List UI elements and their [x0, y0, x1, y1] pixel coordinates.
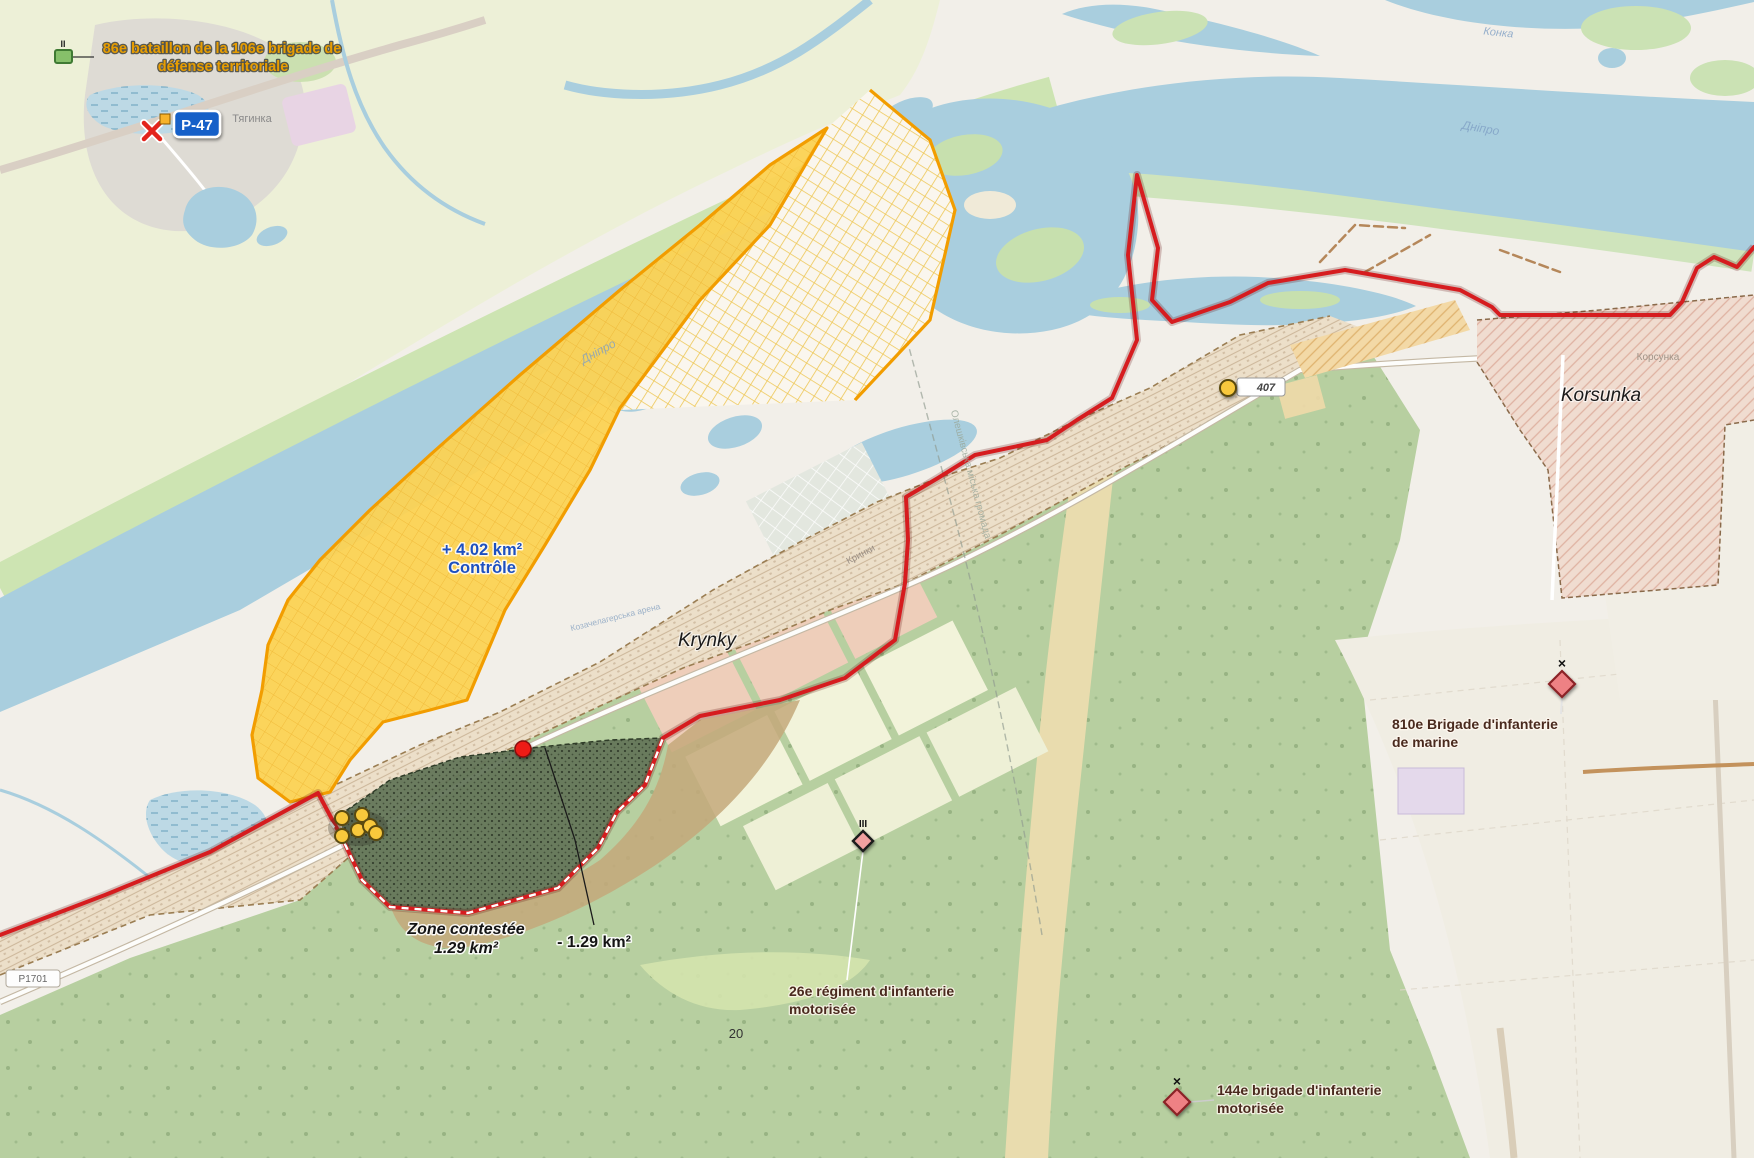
- lavender-compound: [1398, 768, 1464, 814]
- floodplain-island-1: [1090, 297, 1150, 313]
- road-ref-label: Р1701: [19, 974, 48, 985]
- label-control-status: Contrôle: [448, 559, 516, 577]
- unit-144e-echelon: ×: [1173, 1073, 1181, 1089]
- map-canvas[interactable]: II P-47 407 Р1701 × III × Тягинка Дніпро…: [0, 0, 1754, 1158]
- label-control-area: + 4.02 km²: [442, 541, 523, 559]
- label-krynky: Krynky: [678, 630, 738, 651]
- label-unit-144e-line2: motorisée: [1217, 1100, 1284, 1116]
- marker-red-event-dot[interactable]: [515, 741, 531, 757]
- lake-island-sand: [964, 191, 1016, 219]
- road-shield-p47-label: P-47: [181, 117, 213, 134]
- label-unit-810e-line1: 810e Brigade d'infanterie: [1392, 716, 1558, 732]
- unit-810e-echelon: ×: [1558, 655, 1566, 671]
- island-green-1: [1581, 6, 1691, 50]
- floodplain-island-2: [1260, 291, 1340, 309]
- pond-island: [1598, 48, 1626, 68]
- label-unit-810e-line2: de marine: [1392, 734, 1458, 750]
- situation-map-svg: II P-47 407 Р1701 × III × Тягинка Дніпро…: [0, 0, 1754, 1158]
- event-dot: [335, 829, 349, 843]
- unit-810e-leader: [1561, 698, 1562, 714]
- label-contested-name: Zone contestée: [406, 921, 524, 938]
- friendly-unit-icon: [55, 50, 72, 63]
- label-tiahynka: Тягинка: [232, 113, 272, 125]
- label-plot-20: 20: [729, 1026, 743, 1041]
- label-unit-26e-line1: 26e régiment d'infanterie: [789, 983, 954, 999]
- road-ref-label: 407: [1256, 382, 1276, 394]
- label-unit-144e-line1: 144e brigade d'infanterie: [1217, 1082, 1382, 1098]
- label-korsunka: Korsunka: [1561, 385, 1641, 406]
- event-dot: [369, 826, 383, 840]
- label-unit-26e-line2: motorisée: [789, 1001, 856, 1017]
- label-unit-86e-line1: 86e bataillon de la 106e brigade de: [103, 41, 342, 57]
- unit-26e-echelon: III: [859, 819, 868, 830]
- label-unit-86e-line2: défense territoriale: [158, 59, 289, 75]
- road-ref-bottom-left: Р1701: [6, 970, 60, 987]
- label-korsunka-ua: Корсунка: [1637, 352, 1680, 363]
- unit-86e-echelon: II: [60, 39, 65, 49]
- label-contested-area: 1.29 km²: [434, 940, 499, 957]
- event-dot: [1220, 380, 1236, 396]
- marker-event-korsunka[interactable]: 407: [1220, 378, 1285, 396]
- hazard-icon: [160, 114, 170, 124]
- event-dot: [335, 811, 349, 825]
- label-lost-area: - 1.29 km²: [557, 934, 631, 951]
